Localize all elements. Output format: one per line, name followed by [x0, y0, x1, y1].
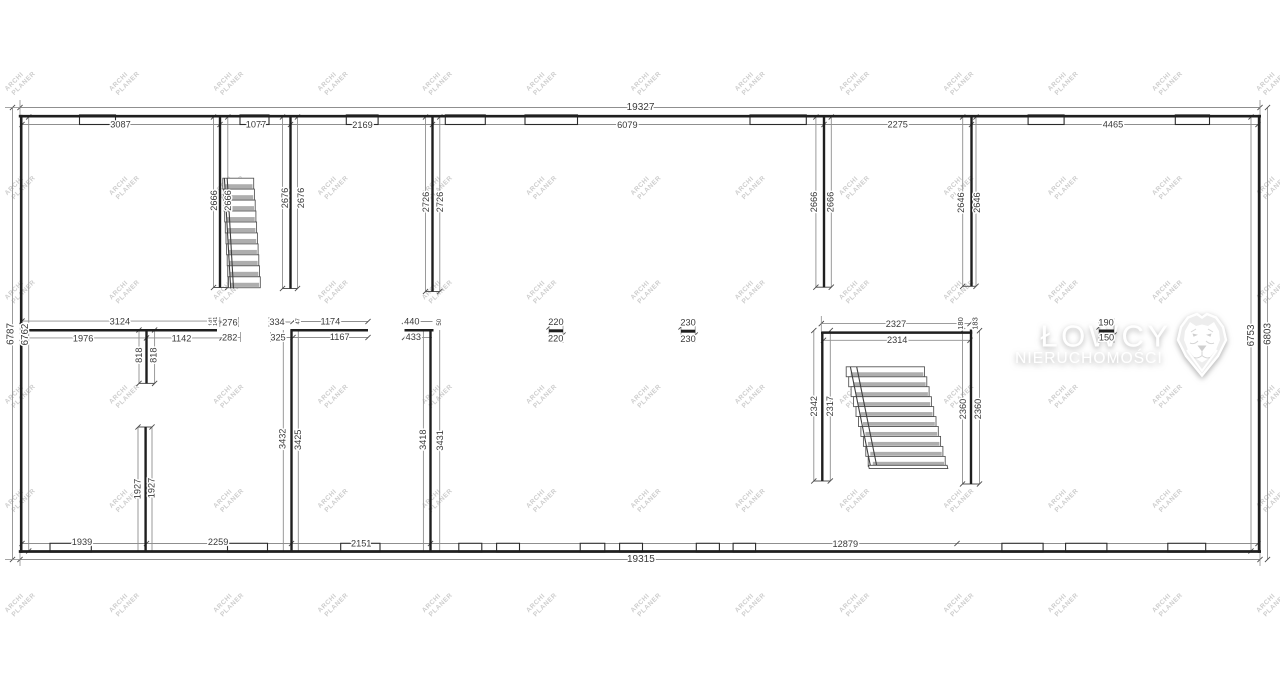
svg-text:50: 50: [437, 318, 443, 325]
svg-text:2666: 2666: [809, 192, 819, 212]
svg-text:6753: 6753: [1246, 324, 1257, 346]
svg-text:2666: 2666: [223, 190, 233, 210]
svg-text:3432: 3432: [277, 429, 287, 449]
svg-text:2646: 2646: [956, 192, 966, 212]
svg-text:220: 220: [548, 317, 563, 327]
svg-text:2327: 2327: [886, 319, 906, 329]
svg-text:3418: 3418: [418, 429, 428, 449]
svg-text:2360: 2360: [973, 399, 983, 419]
svg-text:1927: 1927: [132, 479, 142, 499]
svg-text:19315: 19315: [627, 554, 655, 565]
svg-text:6787: 6787: [5, 323, 16, 345]
svg-text:1927: 1927: [147, 478, 157, 498]
svg-text:818: 818: [149, 348, 159, 363]
svg-text:1142: 1142: [172, 333, 192, 343]
svg-text:2259: 2259: [208, 537, 228, 547]
svg-text:2726: 2726: [421, 192, 431, 212]
svg-text:6079: 6079: [617, 120, 637, 130]
svg-text:19327: 19327: [627, 102, 655, 113]
svg-text:12879: 12879: [833, 539, 859, 549]
svg-text:2275: 2275: [887, 119, 907, 129]
svg-text:2666: 2666: [825, 192, 835, 212]
svg-text:6762: 6762: [20, 324, 31, 346]
svg-text:NIERUCHOMOŚCI: NIERUCHOMOŚCI: [1015, 349, 1163, 367]
svg-text:180: 180: [956, 317, 965, 330]
svg-text:150: 150: [1099, 332, 1114, 342]
svg-text:2360: 2360: [958, 399, 968, 419]
svg-text:2676: 2676: [280, 188, 290, 208]
svg-text:276: 276: [222, 317, 237, 327]
svg-text:2676: 2676: [296, 188, 306, 208]
svg-text:230: 230: [680, 334, 695, 344]
svg-text:2169: 2169: [352, 120, 372, 130]
svg-text:325: 325: [270, 332, 285, 342]
svg-text:3087: 3087: [110, 120, 130, 130]
svg-text:2342: 2342: [809, 396, 819, 416]
svg-text:818: 818: [134, 348, 144, 363]
svg-text:3431: 3431: [435, 430, 445, 450]
svg-text:2314: 2314: [887, 335, 907, 345]
svg-text:2151: 2151: [351, 539, 371, 549]
svg-text:1939: 1939: [72, 537, 92, 547]
svg-text:4465: 4465: [1103, 119, 1123, 129]
svg-text:2726: 2726: [435, 192, 445, 212]
svg-text:2317: 2317: [825, 396, 835, 416]
svg-text:141: 141: [213, 317, 219, 326]
svg-text:2666: 2666: [209, 190, 219, 210]
svg-text:3124: 3124: [110, 317, 130, 327]
svg-text:1077: 1077: [246, 119, 266, 129]
svg-text:1167: 1167: [330, 332, 350, 342]
svg-text:334: 334: [269, 317, 284, 327]
svg-text:230: 230: [680, 317, 695, 327]
svg-text:220: 220: [548, 334, 563, 344]
svg-text:440: 440: [404, 317, 419, 327]
svg-text:3425: 3425: [293, 430, 303, 450]
svg-text:190: 190: [1098, 318, 1113, 328]
svg-text:183: 183: [971, 317, 980, 330]
svg-text:1174: 1174: [321, 317, 341, 327]
svg-text:47: 47: [295, 318, 301, 324]
svg-text:6803: 6803: [1262, 323, 1273, 345]
svg-text:2646: 2646: [972, 192, 982, 212]
svg-text:1976: 1976: [73, 333, 93, 343]
svg-text:282: 282: [222, 332, 237, 342]
svg-text:433: 433: [406, 332, 421, 342]
